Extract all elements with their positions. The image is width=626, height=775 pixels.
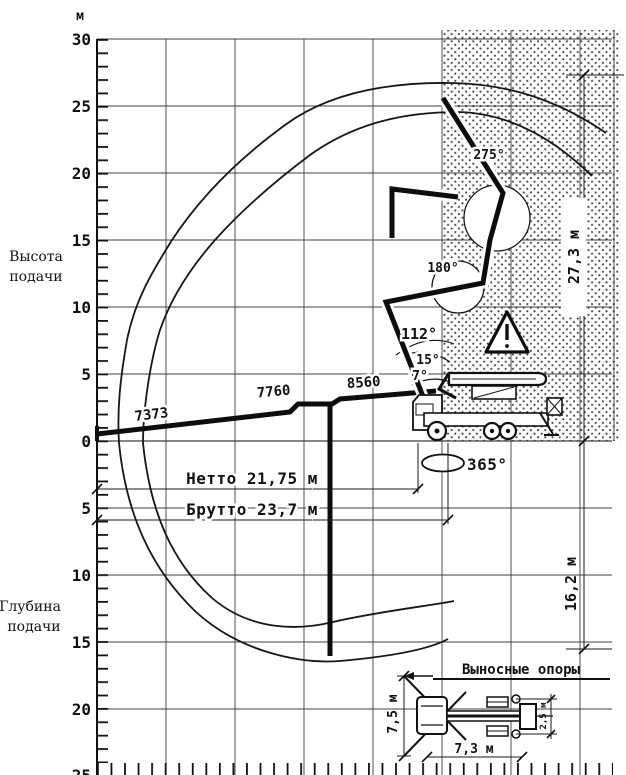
front-spread-label: 7,5 м	[386, 694, 401, 733]
depth-tick-10: 10	[72, 566, 91, 585]
depth-caption-line1: Глубина	[0, 599, 61, 615]
height-tick-30: 30	[72, 30, 91, 49]
gross-reach-label: Брутто 23,7 м	[186, 500, 318, 519]
depth-tick-25: 25	[72, 766, 91, 775]
rear-spread-label: 2,5 м	[539, 702, 549, 730]
tip-joint-angle-label: 275°	[473, 148, 504, 163]
reach-dimensions: Нетто 21,75 м Брутто 23,7 м	[92, 443, 453, 525]
y-axis-labels: м 30 25 20 15 10 5 0 5 10 15 20 25	[72, 9, 91, 775]
height-tick-0: 0	[81, 432, 91, 451]
height-tick-25: 25	[72, 97, 91, 116]
y-axis-minor-ticks	[98, 39, 109, 763]
boom-section-1-label: 7373	[134, 405, 169, 425]
slewing-angle-label: 365°	[467, 455, 508, 474]
front-spread-dimension: 7,5 м	[386, 671, 411, 761]
axis-side-captions: Высота подачи Глубина подачи	[0, 249, 63, 635]
boom-min-angle-label: 15°	[416, 353, 439, 368]
max-height-label: 27,3 м	[565, 230, 583, 284]
height-caption-line2: подачи	[9, 269, 62, 285]
x-axis-minor-ticks	[97, 763, 613, 775]
boom-ground-angle-label: 7°	[412, 369, 428, 384]
base-length-label: 7,3 м	[454, 742, 493, 757]
outrigger-inset: Выносные опоры	[386, 662, 610, 762]
boom-section-3-label: 8560	[346, 374, 381, 392]
height-caption-line1: Высота	[9, 249, 63, 265]
depth-caption-line2: подачи	[7, 619, 60, 635]
depth-tick-5: 5	[81, 499, 91, 518]
depth-tick-15: 15	[72, 633, 91, 652]
diagram-canvas: 27,3 м	[0, 0, 626, 775]
mid-joint-angle-label: 180°	[427, 261, 458, 276]
height-tick-5: 5	[81, 365, 91, 384]
axis-unit-label: м	[76, 9, 84, 24]
height-tick-10: 10	[72, 298, 91, 317]
concrete-pump-reach-diagram: 27,3 м	[0, 0, 626, 775]
max-depth-label: 16,2 м	[562, 557, 580, 611]
net-reach-label: Нетто 21,75 м	[186, 469, 318, 488]
max-depth-dimension: 16,2 м	[562, 441, 612, 654]
depth-tick-20: 20	[72, 700, 91, 719]
boom-section-2-label: 7760	[256, 383, 291, 402]
slewing-range: 365°	[422, 455, 508, 475]
main-boom-angle-label: 112°	[401, 325, 437, 343]
height-tick-20: 20	[72, 164, 91, 183]
outrigger-title: Выносные опоры	[462, 662, 581, 678]
height-tick-15: 15	[72, 231, 91, 250]
